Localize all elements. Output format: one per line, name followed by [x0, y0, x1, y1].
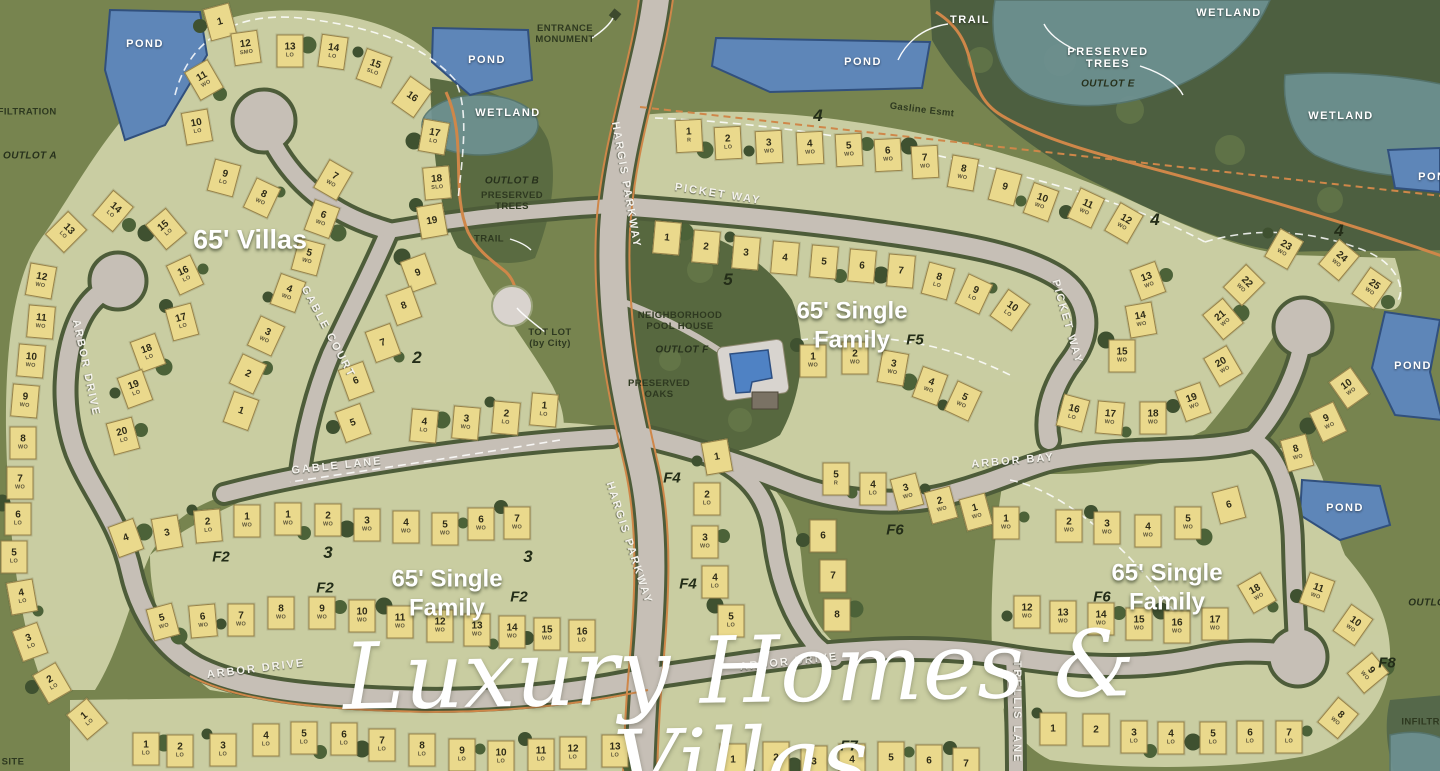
- wetland-bottom-right: [1390, 732, 1440, 771]
- culdesac-villas: [235, 92, 293, 150]
- street-tree: [1059, 205, 1073, 219]
- street-tree: [475, 744, 486, 755]
- pond-top-mid: [712, 38, 930, 92]
- street-tree: [1263, 228, 1274, 239]
- street-tree: [790, 338, 804, 352]
- street-tree: [873, 267, 890, 284]
- street-tree: [156, 735, 173, 752]
- street-tree: [394, 249, 411, 266]
- street-tree: [901, 138, 918, 155]
- street-tree: [1381, 295, 1395, 309]
- street-tree: [300, 37, 317, 54]
- street-tree: [847, 488, 858, 499]
- street-tree: [198, 264, 209, 275]
- terrain-layer: [0, 0, 1440, 771]
- street-tree: [1290, 589, 1304, 603]
- street-tree: [122, 218, 136, 232]
- street-tree: [901, 374, 918, 391]
- street-tree: [1268, 602, 1279, 613]
- street-tree: [193, 19, 207, 33]
- street-tree: [213, 87, 227, 101]
- street-tree: [326, 420, 340, 434]
- street-tree: [1233, 305, 1250, 322]
- street-tree: [187, 505, 198, 516]
- street-tree: [333, 600, 347, 614]
- street-tree: [860, 137, 874, 151]
- street-tree: [1302, 726, 1313, 737]
- street-tree: [1166, 399, 1180, 413]
- street-tree: [134, 423, 148, 437]
- street-tree: [394, 352, 405, 363]
- street-tree: [677, 224, 694, 241]
- street-tree: [943, 741, 957, 755]
- street-tree: [409, 198, 423, 212]
- entrance-monument-marker: [609, 8, 622, 21]
- street-tree: [518, 732, 532, 746]
- street-tree: [353, 47, 364, 58]
- street-tree: [847, 601, 864, 618]
- street-tree: [697, 142, 714, 159]
- street-tree: [1153, 603, 1170, 620]
- street-tree: [796, 533, 810, 547]
- street-tree: [1121, 427, 1132, 438]
- street-tree: [904, 747, 915, 758]
- pond-right-edge: [1388, 148, 1440, 192]
- pond-right: [1372, 312, 1440, 420]
- street-tree: [216, 619, 227, 630]
- street-tree: [458, 518, 469, 529]
- street-tree: [263, 292, 274, 303]
- street-tree: [1084, 505, 1098, 519]
- street-tree: [275, 187, 286, 198]
- street-tree: [330, 225, 347, 242]
- street-tree: [707, 597, 724, 614]
- street-tree: [202, 729, 213, 740]
- street-tree: [297, 526, 311, 540]
- street-tree: [520, 631, 534, 645]
- street-tree: [1378, 659, 1395, 676]
- culdesac-west: [92, 255, 144, 307]
- street-tree: [406, 133, 423, 150]
- street-tree: [1032, 708, 1043, 719]
- street-tree: [833, 269, 847, 283]
- street-tree: [136, 524, 153, 541]
- street-tree: [110, 388, 121, 399]
- street-tree: [1196, 529, 1213, 546]
- street-tree: [485, 397, 496, 408]
- street-tree: [920, 484, 931, 495]
- street-tree: [1002, 611, 1013, 622]
- street-tree: [987, 283, 998, 294]
- street-tree: [1143, 744, 1157, 758]
- street-tree: [1159, 268, 1173, 282]
- wetland-left: [422, 95, 538, 155]
- street-tree: [354, 741, 371, 758]
- pool-house: [752, 392, 778, 409]
- street-tree: [313, 745, 327, 759]
- street-tree: [494, 500, 508, 514]
- street-tree: [25, 680, 39, 694]
- street-tree: [1185, 734, 1202, 751]
- street-tree: [488, 639, 499, 650]
- street-tree: [171, 628, 188, 645]
- street-tree: [1112, 606, 1126, 620]
- street-tree: [1019, 512, 1030, 523]
- street-tree: [259, 361, 273, 375]
- tot-lot-pad: [492, 286, 532, 326]
- street-tree: [159, 299, 173, 313]
- street-tree: [138, 225, 155, 242]
- road-trellis-lane: [1013, 657, 1016, 771]
- street-tree: [1016, 196, 1027, 207]
- culdesac-east: [1276, 300, 1330, 354]
- street-tree: [434, 412, 451, 429]
- street-tree: [692, 456, 703, 467]
- street-tree: [716, 529, 730, 543]
- street-tree: [339, 521, 356, 538]
- street-tree: [376, 598, 393, 615]
- culdesac-f8: [1271, 630, 1325, 684]
- street-tree: [725, 232, 736, 243]
- street-tree: [156, 359, 173, 376]
- site-plan-map: 112SMO13LO14LO15SLO1611WO10LO17LO9LO8WO1…: [0, 0, 1440, 771]
- street-tree: [744, 146, 755, 157]
- street-tree: [938, 400, 949, 411]
- street-tree: [1300, 418, 1317, 435]
- street-tree: [1098, 332, 1115, 349]
- street-tree: [33, 606, 44, 617]
